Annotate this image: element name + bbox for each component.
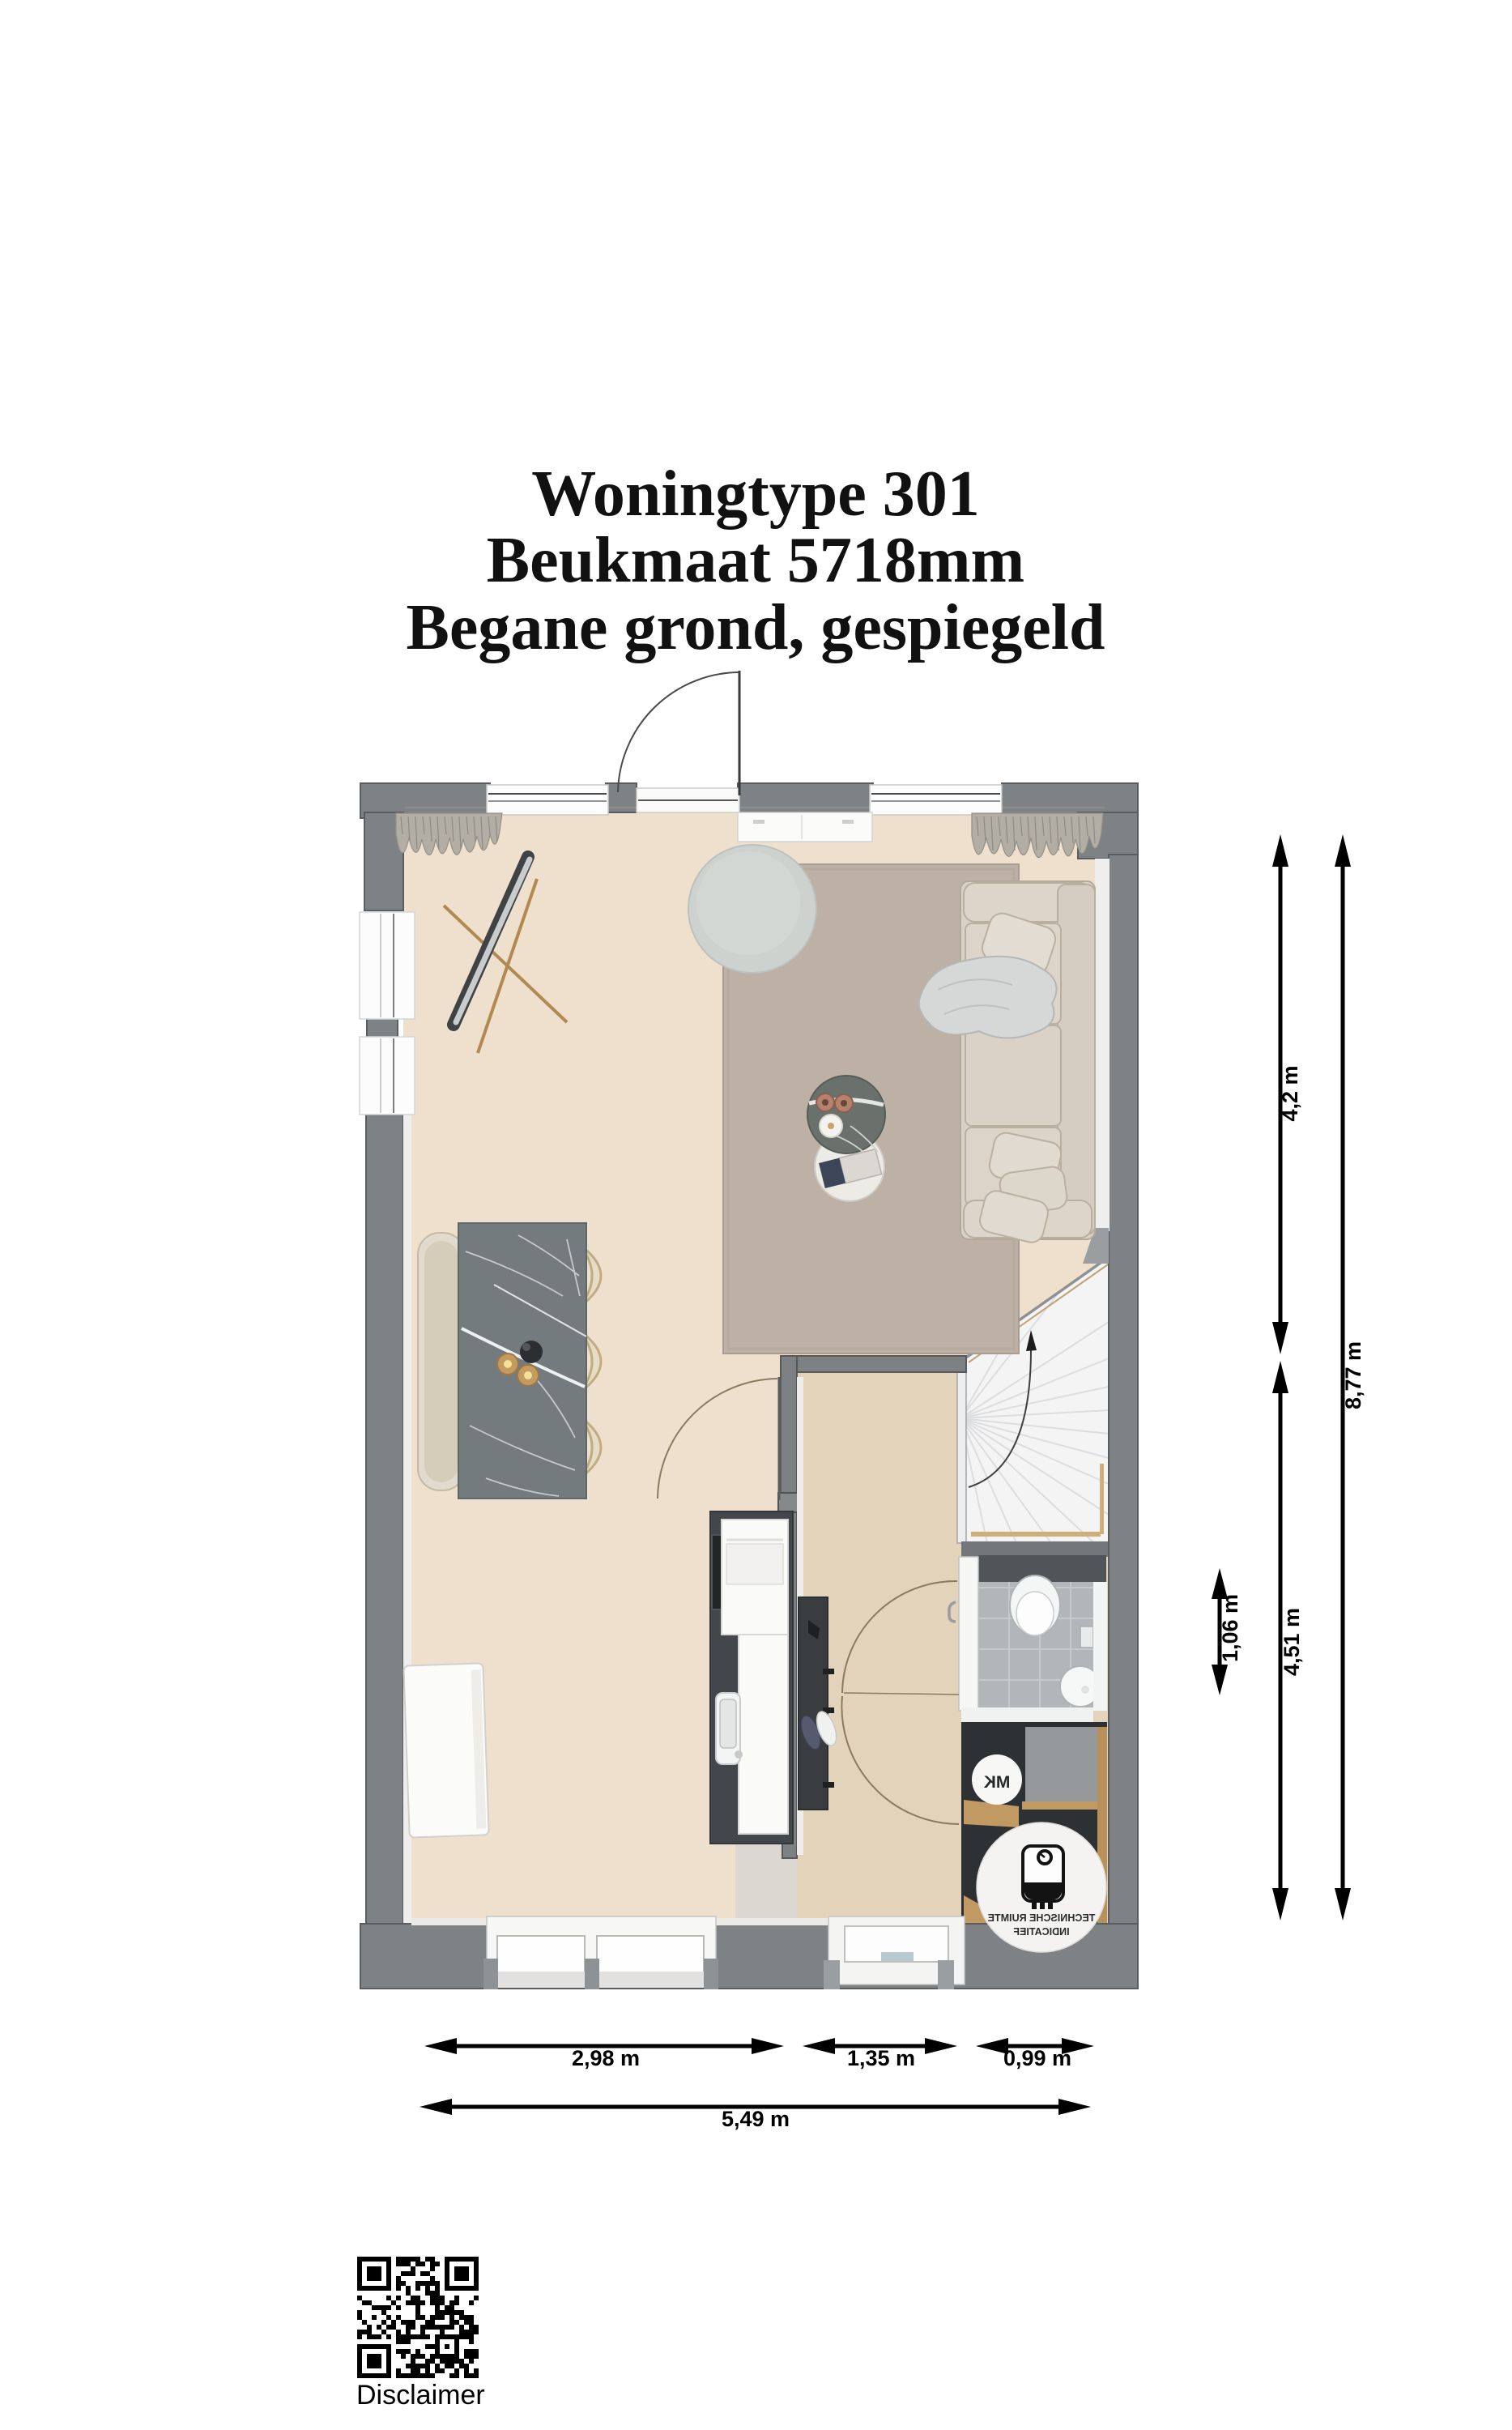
svg-text:MK: MK [984, 1773, 1011, 1792]
svg-text:2,98 m: 2,98 m [572, 2046, 640, 2070]
svg-text:4,2 m: 4,2 m [1278, 1065, 1302, 1121]
svg-text:8,77 m: 8,77 m [1341, 1341, 1365, 1409]
svg-text:0,99 m: 0,99 m [1003, 2046, 1071, 2070]
svg-text:Beukmaat 5718mm: Beukmaat 5718mm [487, 525, 1024, 596]
svg-text:4,51 m: 4,51 m [1280, 1608, 1304, 1676]
svg-text:1,06 m: 1,06 m [1218, 1594, 1242, 1662]
svg-text:TECHNISCHE RUIMTE: TECHNISCHE RUIMTE [988, 1912, 1096, 1924]
svg-text:5,49 m: 5,49 m [722, 2107, 790, 2131]
svg-text:INDICATIEF: INDICATIEF [1013, 1926, 1070, 1938]
svg-text:Begane grond, gespiegeld: Begane grond, gespiegeld [406, 592, 1105, 663]
svg-text:Woningtype 301: Woningtype 301 [531, 458, 979, 530]
svg-text:Disclaimer: Disclaimer [356, 2380, 485, 2411]
svg-text:1,35 m: 1,35 m [847, 2046, 915, 2070]
